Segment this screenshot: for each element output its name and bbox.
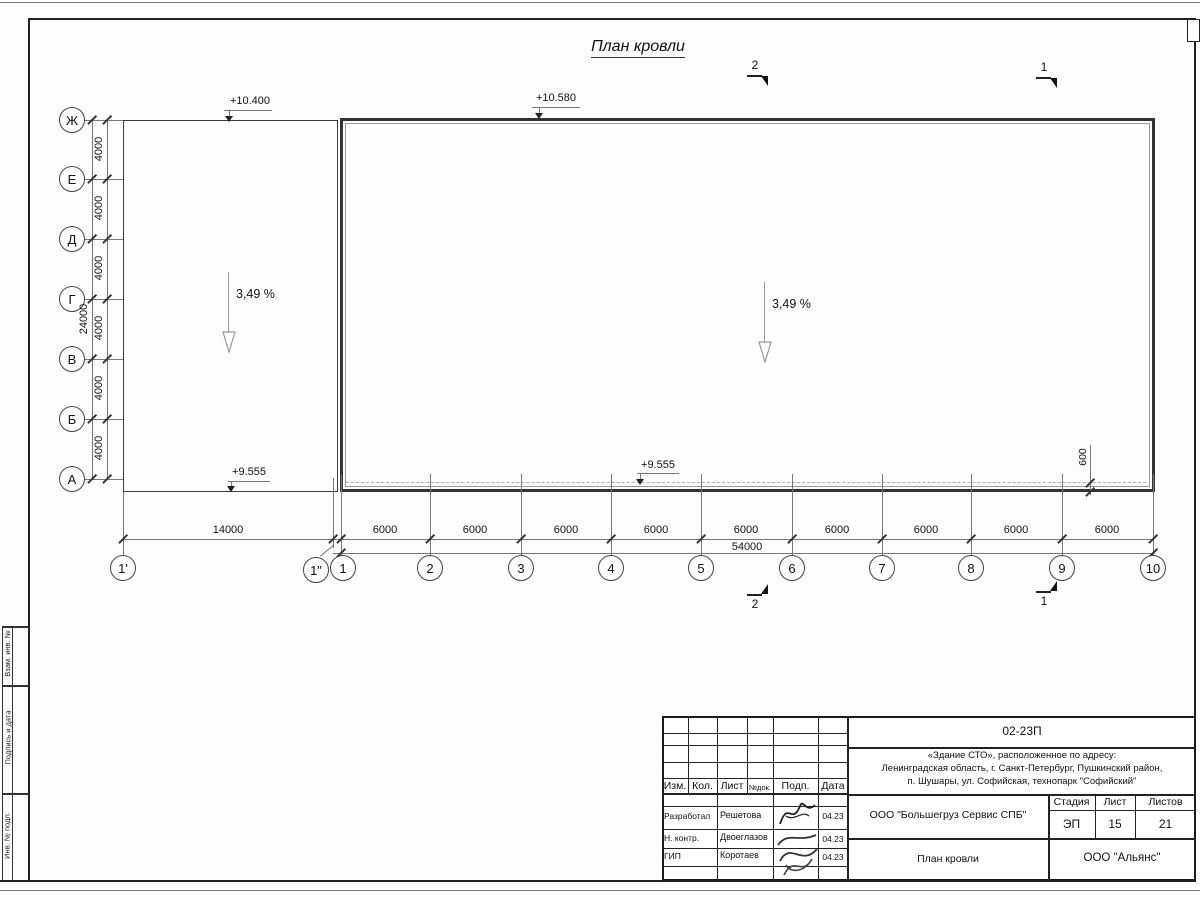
tb-line (662, 793, 848, 795)
axis-number-bubble: 1" (303, 557, 329, 583)
dim-label-4000: 4000 (93, 358, 105, 418)
roof-edge-dashed-line (346, 482, 1146, 483)
axis-letter-bubble: А (59, 466, 85, 492)
project-address-line1: «Здание СТО», расположенное по адресу: (852, 750, 1192, 761)
tb-line (848, 747, 1196, 749)
offset-dim-line (1090, 445, 1091, 495)
right-roof-inner-line (345, 123, 1150, 487)
tb-col-data: Дата (818, 780, 848, 792)
dim-label-6000: 6000 (896, 524, 956, 536)
elevation-label: +9.555 (224, 466, 274, 478)
axis-stub (430, 474, 431, 556)
elevation-label: +10.580 (528, 92, 584, 104)
signature-icon (776, 796, 818, 830)
tb-role: Н. контр. (664, 833, 717, 843)
axis-number-bubble: 1' (110, 555, 136, 581)
dim-label-6000: 6000 (807, 524, 867, 536)
axis-letter-bubble: Е (59, 166, 85, 192)
frame-left (28, 18, 30, 881)
tb-line (662, 866, 848, 867)
axis-stub (1062, 474, 1063, 556)
page-title-text: План кровли (591, 38, 685, 58)
tb-name: Коротаев (720, 850, 772, 860)
dim-label-6000: 6000 (445, 524, 505, 536)
section-mark-label: 2 (748, 58, 762, 72)
project-address-line2: Ленинградская область, г. Санкт-Петербур… (852, 763, 1192, 774)
axis-letter-bubble: Д (59, 226, 85, 252)
h-dim-line-steps (123, 539, 1154, 540)
axis-stub (792, 474, 793, 556)
axis-stub (971, 474, 972, 556)
elevation-shelf (637, 473, 679, 474)
page-title: План кровли (558, 38, 718, 56)
axis-number-bubble: 4 (598, 555, 624, 581)
axis-number-bubble: 2 (417, 555, 443, 581)
h-dim-line-total (333, 553, 1153, 554)
section-mark-line (747, 594, 762, 596)
axis-stub (882, 474, 883, 556)
stage-label: Стадия (1048, 796, 1095, 808)
elevation-arrow-icon (535, 113, 543, 119)
dim-label-4000: 4000 (93, 238, 105, 298)
axis-number-bubble: 10 (1140, 555, 1166, 581)
stage-value: ЭП (1048, 817, 1095, 831)
elevation-shelf (228, 481, 270, 482)
elevation-shelf (224, 110, 272, 111)
section-arrow-icon (1050, 581, 1057, 591)
strip-label-vzam: Взам. инв. № (3, 624, 12, 683)
section-mark-label: 1 (1037, 594, 1051, 608)
section-mark-line (1036, 591, 1051, 593)
slope-arrowhead-icon (221, 331, 237, 353)
design-org: ООО "Альянс" (1048, 852, 1196, 864)
tb-line (848, 838, 1196, 840)
axis-number-bubble: 3 (508, 555, 534, 581)
left-roof-outline (123, 120, 338, 492)
section-mark-line (1036, 77, 1051, 79)
slope-label: 3,49 % (772, 297, 811, 311)
paper-edge-top (0, 2, 1200, 3)
tb-role: ГИП (664, 851, 717, 861)
tb-col-izm: Изм. (662, 780, 688, 792)
axis-stub (341, 474, 342, 556)
slope-label: 3,49 % (236, 287, 275, 301)
tb-date: 04.23 (818, 852, 848, 862)
tb-date: 04.23 (818, 811, 848, 821)
frame-top (28, 18, 1196, 20)
v-dim-line-steps (107, 120, 108, 480)
dim-label-600: 600 (1077, 437, 1089, 477)
axis-number-bubble: 8 (958, 555, 984, 581)
dim-label-4000: 4000 (93, 298, 105, 358)
dim-label-4000: 4000 (93, 418, 105, 478)
tb-line (717, 716, 718, 880)
axis-number-bubble: 1 (330, 555, 356, 581)
tb-line (1048, 810, 1196, 811)
tb-line (662, 829, 848, 830)
paper-edge-bottom (0, 890, 1200, 891)
section-mark-label: 2 (748, 597, 762, 611)
signature-icon (774, 829, 820, 879)
axis-number-bubble: 5 (688, 555, 714, 581)
slope-arrowhead-icon (757, 341, 773, 363)
dim-label-14000: 14000 (193, 524, 263, 536)
axis-number-bubble: 9 (1049, 555, 1075, 581)
dim-label-24000: 24000 (78, 279, 90, 359)
axis-stub (1153, 474, 1154, 556)
slope-arrow-line (228, 272, 229, 333)
dim-label-6000: 6000 (1077, 524, 1137, 536)
dim-label-6000: 6000 (716, 524, 776, 536)
tb-role: Разработал (664, 811, 717, 821)
tb-line (662, 745, 848, 746)
tb-name: Двоеглазов (720, 832, 772, 842)
elevation-label: +9.555 (633, 459, 683, 471)
contractor-company: ООО "Большегруз Сервис СПБ" (848, 809, 1048, 821)
elevation-arrow-icon (636, 479, 644, 485)
tb-name: Решетова (720, 810, 772, 820)
elevation-arrow-icon (225, 116, 233, 122)
sheet-label: Лист (1095, 796, 1135, 808)
sheet-title: План кровли (848, 853, 1048, 865)
axis-letter-bubble: Б (59, 406, 85, 432)
sheet-value: 15 (1095, 817, 1135, 831)
corner-stamp-box (1187, 19, 1200, 42)
section-mark-label: 1 (1037, 60, 1051, 74)
axis-letter-bubble: Ж (59, 107, 85, 133)
dim-label-6000: 6000 (626, 524, 686, 536)
right-roof-outline (340, 118, 1155, 492)
axis-number-bubble: 7 (869, 555, 895, 581)
elevation-label: +10.400 (222, 95, 278, 107)
elevation-arrow-icon (227, 486, 235, 492)
section-arrow-icon (761, 584, 768, 594)
sheets-value: 21 (1135, 817, 1196, 831)
axis-number-bubble: 6 (779, 555, 805, 581)
dim-label-4000: 4000 (93, 178, 105, 238)
tb-line (662, 848, 848, 849)
sheets-label: Листов (1135, 796, 1196, 808)
document-code: 02-23П (848, 724, 1196, 738)
section-arrow-icon (761, 76, 768, 86)
tb-line (662, 778, 848, 779)
axis-stub (521, 474, 522, 556)
strip-label-inv: Инв. № подл. (3, 792, 12, 880)
tb-line (662, 733, 848, 734)
tb-date: 04.23 (818, 834, 848, 844)
project-address-line3: п. Шушары, ул. Софийская, технопарк "Соф… (852, 776, 1192, 787)
section-arrow-icon (1050, 78, 1057, 88)
tb-line (747, 716, 748, 793)
drawing-sheet: План кровли Ж Е Д Г В Б А 4000 4000 4000… (0, 0, 1200, 900)
tb-col-ndok: №док. (747, 783, 773, 792)
tb-line (662, 762, 848, 763)
dim-label-54000: 54000 (712, 541, 782, 553)
tb-col-list: Лист (717, 780, 747, 792)
axis-stub (701, 474, 702, 556)
axis-stub (123, 492, 124, 555)
section-mark-line (747, 75, 762, 77)
dim-label-6000: 6000 (536, 524, 596, 536)
axis-stub (611, 474, 612, 556)
tb-col-podp: Подп. (773, 780, 818, 792)
axis-stub-slant (320, 545, 334, 557)
slope-arrow-line (764, 282, 765, 343)
strip-label-podpis: Подпись и дата (4, 684, 13, 792)
tb-line (662, 806, 848, 807)
dim-label-6000: 6000 (986, 524, 1046, 536)
dim-label-4000: 4000 (93, 119, 105, 179)
dim-label-6000: 6000 (355, 524, 415, 536)
tb-col-kol: Кол. (688, 780, 717, 792)
